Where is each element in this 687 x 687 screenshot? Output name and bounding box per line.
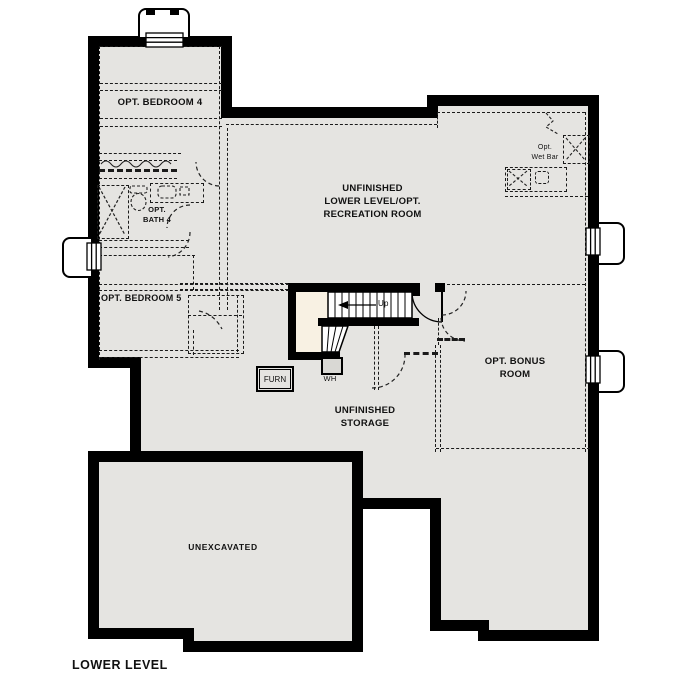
vanity-counter xyxy=(150,183,204,203)
wall-stair-mid xyxy=(318,318,419,326)
bonus-boundary-bottom xyxy=(436,448,590,449)
wall-stair-left xyxy=(288,283,296,360)
wall-unexcavated-left xyxy=(88,451,99,639)
bonus-boundary-left-b xyxy=(440,345,441,452)
stair-closet-right-b xyxy=(237,295,238,352)
wall-door-stub xyxy=(435,283,445,292)
label-bedroom5: OPT. BEDROOM 5 xyxy=(101,293,196,304)
bedroom4-divider-2a xyxy=(100,118,222,119)
bedroom4-divider-1a xyxy=(100,83,222,84)
bath-closet-line-3 xyxy=(99,178,177,179)
wall-top-right xyxy=(427,95,599,106)
wall-step-left-v xyxy=(130,357,141,462)
bedroom5-right-a xyxy=(193,255,194,290)
floor-top-right xyxy=(430,105,594,125)
floor-storage-south xyxy=(360,460,441,503)
window-well-right-1 xyxy=(597,222,625,265)
storage-boundary-b xyxy=(378,326,379,390)
wall-unexcavated-top xyxy=(88,451,363,462)
bedroom4-boundary-top xyxy=(100,46,222,47)
rec-boundary-step xyxy=(437,112,438,128)
stair-closet xyxy=(188,295,244,354)
floor-bedroom-wing-lower xyxy=(138,368,226,462)
label-bedroom4-text: OPT. BEDROOM 4 xyxy=(98,97,222,109)
plan-title: LOWER LEVEL xyxy=(72,658,212,674)
label-rec-room: UNFINISHED LOWER LEVEL/OPT. RECREATION R… xyxy=(285,183,460,221)
hall-boundary-right-a xyxy=(219,46,220,310)
wall-top-middle xyxy=(221,107,437,118)
furnace: FURN xyxy=(256,366,294,392)
rec-boundary-top-right xyxy=(437,112,585,113)
bath-closet-line-2 xyxy=(99,169,177,172)
wall-stair-right-end xyxy=(412,283,420,296)
rec-boundary-top-left xyxy=(226,124,437,125)
wetbar-boundary-bottom xyxy=(505,196,588,197)
wall-unexcavated-right xyxy=(352,451,363,652)
bath-boundary-bottom-a xyxy=(99,240,189,241)
bonus-boundary-left-a xyxy=(435,345,436,452)
label-bath4: OPT. BATH 4 xyxy=(133,205,181,225)
label-bonus-room: OPT. BONUS ROOM xyxy=(450,356,580,382)
label-unexcavated-text: UNEXCAVATED xyxy=(153,542,293,553)
floor-bonus-south xyxy=(435,455,594,623)
shower xyxy=(97,185,129,239)
label-unexcavated: UNEXCAVATED xyxy=(153,542,293,553)
wall-stair-top xyxy=(288,283,420,292)
furnace-label: FURN xyxy=(259,369,291,389)
wall-unexcavated-bottom-left xyxy=(88,628,194,639)
wall-storage-right-v xyxy=(430,498,441,631)
label-bedroom4: OPT. BEDROOM 4 xyxy=(98,97,222,109)
window-well-top-tab-right xyxy=(170,10,179,15)
door-seg-bonus xyxy=(437,338,465,341)
door-seg-storage xyxy=(404,352,438,355)
bedroom5-boundary-top-a xyxy=(99,255,195,256)
water-heater xyxy=(321,357,343,375)
bonus-boundary-top xyxy=(447,284,585,285)
wall-bottom-right xyxy=(478,630,599,641)
window-well-right-2 xyxy=(597,350,625,393)
storage-boundary-a xyxy=(374,326,375,390)
label-water-heater: WH xyxy=(318,374,342,383)
label-storage: UNFINISHED STORAGE xyxy=(300,405,430,431)
bedroom5-divider-a xyxy=(99,284,289,285)
bath-boundary-top xyxy=(99,153,181,154)
floor-unexcavated-notch xyxy=(188,628,357,641)
floor-plan: FURN xyxy=(0,0,687,687)
wall-unexcavated-bottom xyxy=(183,641,363,652)
wall-bedroom4-right xyxy=(221,36,232,118)
label-bedroom5-text: OPT. BEDROOM 5 xyxy=(101,293,196,304)
window-well-left xyxy=(62,237,93,278)
label-up: Up xyxy=(378,299,400,309)
bath-closet-line-1 xyxy=(99,160,177,161)
wetbar-fixture xyxy=(535,171,549,184)
bedroom4-divider-2b xyxy=(100,126,222,127)
window-well-top-tab-left xyxy=(146,10,155,15)
bedroom5-divider-b xyxy=(99,290,289,291)
label-wetbar: Opt. Wet Bar xyxy=(515,143,575,163)
bedroom5-boundary-bottom-b xyxy=(99,357,239,358)
plan-title-text: LOWER LEVEL xyxy=(72,658,212,674)
bath-boundary-bottom-b xyxy=(99,247,189,248)
door-seg-bonus-v xyxy=(438,318,439,345)
bedroom4-divider-1b xyxy=(100,90,222,91)
wetbar-sink xyxy=(507,169,531,190)
wall-storage-bottom xyxy=(352,498,441,509)
stair-closet-divider xyxy=(188,315,242,316)
